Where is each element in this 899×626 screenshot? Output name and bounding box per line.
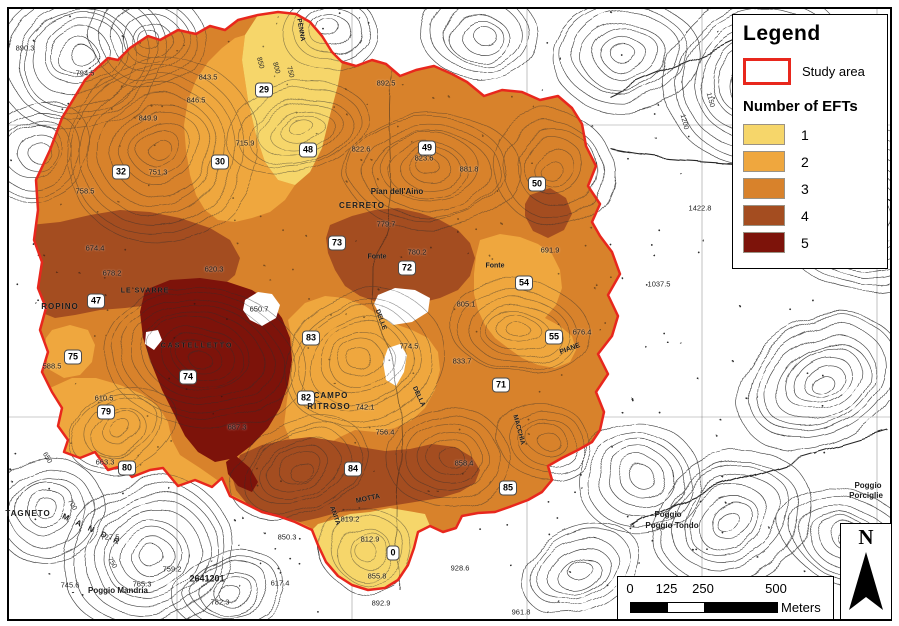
- elevation-label: 617.4: [271, 579, 290, 587]
- region-label-48: 48: [299, 143, 317, 158]
- legend-class-list: 12345: [743, 124, 887, 253]
- elevation-label: 892.9: [372, 599, 391, 607]
- elevation-label: 892.5: [377, 79, 396, 87]
- legend-class-swatch: [743, 232, 785, 253]
- elevation-label: 691.9: [541, 246, 560, 254]
- elevation-label: 779.7: [377, 220, 396, 228]
- elevation-label: 751.3: [149, 168, 168, 176]
- elevation-label: 782.3: [211, 598, 230, 606]
- legend-box: Legend Study area Number of EFTs 12345: [732, 14, 888, 269]
- elevation-label: 745.6: [61, 581, 80, 589]
- scale-tick: 125: [656, 581, 678, 596]
- scale-bar: Meters 0125250500: [617, 576, 834, 620]
- elevation-label: 758.5: [76, 187, 95, 195]
- legend-class-swatch: [743, 178, 785, 199]
- legend-class-label: 4: [801, 208, 809, 224]
- region-label-47: 47: [87, 294, 105, 309]
- place-label: RITROSO: [307, 403, 350, 411]
- legend-class-row: 2: [743, 151, 887, 172]
- region-label-55: 55: [545, 330, 563, 345]
- north-arrow-icon: [844, 550, 888, 614]
- scale-unit-label: Meters: [781, 600, 821, 615]
- elevation-label: 822.6: [352, 145, 371, 153]
- place-label: Poggio: [654, 511, 681, 519]
- elevation-label: 849.9: [139, 114, 158, 122]
- elevation-label: 843.5: [199, 73, 218, 81]
- region-label-30: 30: [211, 155, 229, 170]
- region-label-73: 73: [328, 236, 346, 251]
- elevation-label: 727.5: [101, 533, 120, 541]
- scale-tick: 250: [692, 581, 714, 596]
- region-label-0: 0: [386, 546, 399, 561]
- place-label: Fonte: [367, 254, 386, 261]
- elevation-label: 850.3: [278, 533, 297, 541]
- legend-class-label: 1: [801, 127, 809, 143]
- elevation-label: 855.8: [368, 572, 387, 580]
- elevation-label: 819.2: [341, 515, 360, 523]
- place-label: CASTELLETTO: [161, 343, 234, 350]
- region-label-72: 72: [398, 261, 416, 276]
- legend-class-label: 2: [801, 154, 809, 170]
- map-page: 2930324849507372475455757483827179808485…: [0, 0, 899, 626]
- elevation-label: 961.8: [512, 608, 531, 616]
- scale-segment: [668, 603, 705, 612]
- elevation-label: 846.5: [187, 96, 206, 104]
- elevation-label: 588.5: [43, 362, 62, 370]
- scale-segment: [631, 603, 668, 612]
- place-label: TAGNETO: [5, 510, 50, 518]
- place-label: 2641201: [189, 575, 224, 584]
- legend-class-swatch: [743, 205, 785, 226]
- study-area-swatch: [743, 58, 791, 85]
- scale-bar-segments: [630, 602, 778, 613]
- elevation-label: 674.4: [86, 244, 105, 252]
- region-label-85: 85: [499, 481, 517, 496]
- region-label-75: 75: [64, 350, 82, 365]
- elevation-label: 858.4: [455, 459, 474, 467]
- place-label: CERRETO: [339, 202, 385, 210]
- legend-title: Legend: [743, 22, 887, 46]
- place-label: Pian dell'Aino: [371, 188, 424, 196]
- legend-class-label: 5: [801, 235, 809, 251]
- region-label-29: 29: [255, 83, 273, 98]
- region-label-83: 83: [302, 331, 320, 346]
- legend-study-area-row: Study area: [743, 58, 887, 85]
- legend-class-row: 3: [743, 178, 887, 199]
- elevation-label: 676.4: [573, 328, 592, 336]
- elevation-label: 1422.8: [689, 204, 712, 212]
- place-label: CAMPO: [314, 392, 349, 400]
- legend-class-row: 1: [743, 124, 887, 145]
- region-label-74: 74: [179, 370, 197, 385]
- elevation-label: 833.7: [453, 357, 472, 365]
- region-label-71: 71: [492, 378, 510, 393]
- elevation-label: 890.3: [16, 44, 35, 52]
- elevation-label: 687.3: [228, 423, 247, 431]
- place-label: LE SVARRE: [121, 288, 170, 295]
- legend-section-title: Number of EFTs: [743, 98, 887, 115]
- elevation-label: 759.2: [163, 565, 182, 573]
- region-label-54: 54: [515, 276, 533, 291]
- elevation-label: 742.1: [356, 403, 375, 411]
- legend-class-label: 3: [801, 181, 809, 197]
- scale-segment: [704, 603, 777, 612]
- elevation-label: 823.6: [415, 154, 434, 162]
- study-area-label: Study area: [802, 64, 865, 79]
- region-label-80: 80: [118, 461, 136, 476]
- place-label: ROPINO: [41, 303, 79, 311]
- place-label: Poggio: [854, 482, 881, 490]
- elevation-label: 928.6: [451, 564, 470, 572]
- elevation-label: 610.5: [95, 394, 114, 402]
- elevation-label: 663.3: [96, 458, 115, 466]
- place-label: Porciglie: [849, 492, 883, 500]
- scale-tick: 500: [765, 581, 787, 596]
- region-label-32: 32: [112, 165, 130, 180]
- north-label: N: [841, 524, 891, 550]
- legend-class-swatch: [743, 124, 785, 145]
- elevation-label: 715.9: [236, 139, 255, 147]
- elevation-label: 881.8: [460, 165, 479, 173]
- place-label: Poggio Tondo: [645, 522, 698, 530]
- elevation-label: 812.9: [361, 535, 380, 543]
- elevation-label: 1037.5: [648, 280, 671, 288]
- legend-class-row: 5: [743, 232, 887, 253]
- place-label: Fonte: [485, 263, 504, 270]
- elevation-label: 794.5: [76, 69, 95, 77]
- elevation-label: 774.5: [400, 342, 419, 350]
- elevation-label: 756.4: [376, 428, 395, 436]
- scale-tick: 0: [626, 581, 633, 596]
- legend-class-row: 4: [743, 205, 887, 226]
- elevation-label: 780.2: [408, 248, 427, 256]
- elevation-label: 650.7: [250, 305, 269, 313]
- elevation-label: 765.3: [133, 580, 152, 588]
- region-label-50: 50: [528, 177, 546, 192]
- region-label-84: 84: [344, 462, 362, 477]
- north-arrow-box: N: [840, 523, 892, 620]
- elevation-label: 620.3: [205, 265, 224, 273]
- elevation-label: 678.2: [103, 269, 122, 277]
- elevation-label: 805.1: [457, 300, 476, 308]
- legend-class-swatch: [743, 151, 785, 172]
- region-label-79: 79: [97, 405, 115, 420]
